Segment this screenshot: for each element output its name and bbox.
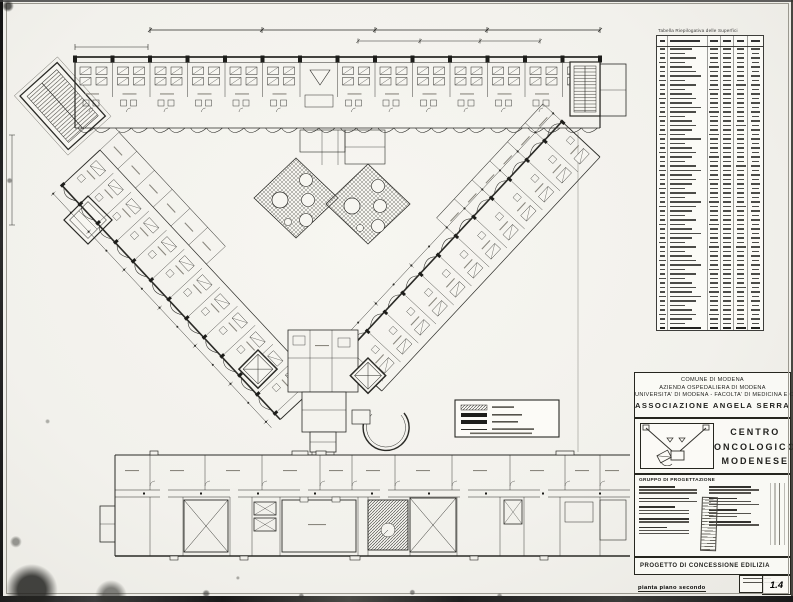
surface-table-header <box>657 36 763 47</box>
title-strip: pianta piano secondo 1.4 <box>634 575 791 594</box>
project-title-block: CENTRO ONCOLOGICO MODENESE <box>634 418 791 474</box>
drawing-number-box: 1.4 <box>762 575 791 595</box>
service-building <box>100 451 630 560</box>
building-schematic-icon <box>640 423 714 469</box>
association-name: ASSOCIAZIONE ANGELA SERRA <box>635 402 790 410</box>
legend-box <box>455 400 559 437</box>
project-name: CENTRO ONCOLOGICO MODENESE <box>714 419 793 473</box>
surface-table: Tabella Riepilogativa delle Superfici <box>656 28 764 331</box>
team-names-left <box>639 486 701 538</box>
org-line: AZIENDA OSPEDALIERA DI MODENA <box>635 385 790 393</box>
scale-box <box>739 575 764 593</box>
central-core <box>239 330 386 455</box>
document-type-bar: PROGETTO DI CONCESSIONE EDILIZIA <box>634 557 791 575</box>
floor-plan <box>0 0 632 602</box>
design-team-block: GRUPPO DI PROGETTAZIONE <box>634 474 791 557</box>
approval-stamp <box>700 497 718 552</box>
org-line: UNIVERSITA' DI MODENA - FACOLTA' DI MEDI… <box>635 392 790 400</box>
table-row <box>657 326 763 331</box>
sheet-edge <box>0 0 793 2</box>
stair-tower-top-right <box>570 62 626 116</box>
project-name-line: ONCOLOGICO <box>714 440 793 455</box>
project-name-line: MODENESE <box>714 454 793 469</box>
org-header: COMUNE DI MODENA AZIENDA OSPEDALIERA DI … <box>634 372 791 418</box>
team-header: GRUPPO DI PROGETTAZIONE <box>639 478 786 483</box>
side-notes <box>770 483 787 545</box>
drawing-sheet: Tabella Riepilogativa delle Superfici <box>0 0 793 602</box>
surface-table-title: Tabella Riepilogativa delle Superfici <box>658 28 764 33</box>
surface-table-rows <box>657 47 763 331</box>
drawing-number: 1.4 <box>770 580 783 591</box>
surface-table-grid <box>656 35 764 332</box>
stair-room-left <box>64 196 112 244</box>
sheet-edge <box>0 596 793 602</box>
sheet-edge <box>0 0 3 602</box>
doc-type-label: PROGETTO DI CONCESSIONE EDILIZIA <box>640 563 770 569</box>
drawing-caption: pianta piano secondo <box>638 585 706 593</box>
top-ward-wing <box>73 56 602 133</box>
entrance-rotunda <box>352 410 409 450</box>
right-ward-wing <box>325 103 601 391</box>
project-name-line: CENTRO <box>714 425 793 440</box>
org-line: COMUNE DI MODENA <box>635 377 790 385</box>
treatment-rooms <box>254 130 410 244</box>
